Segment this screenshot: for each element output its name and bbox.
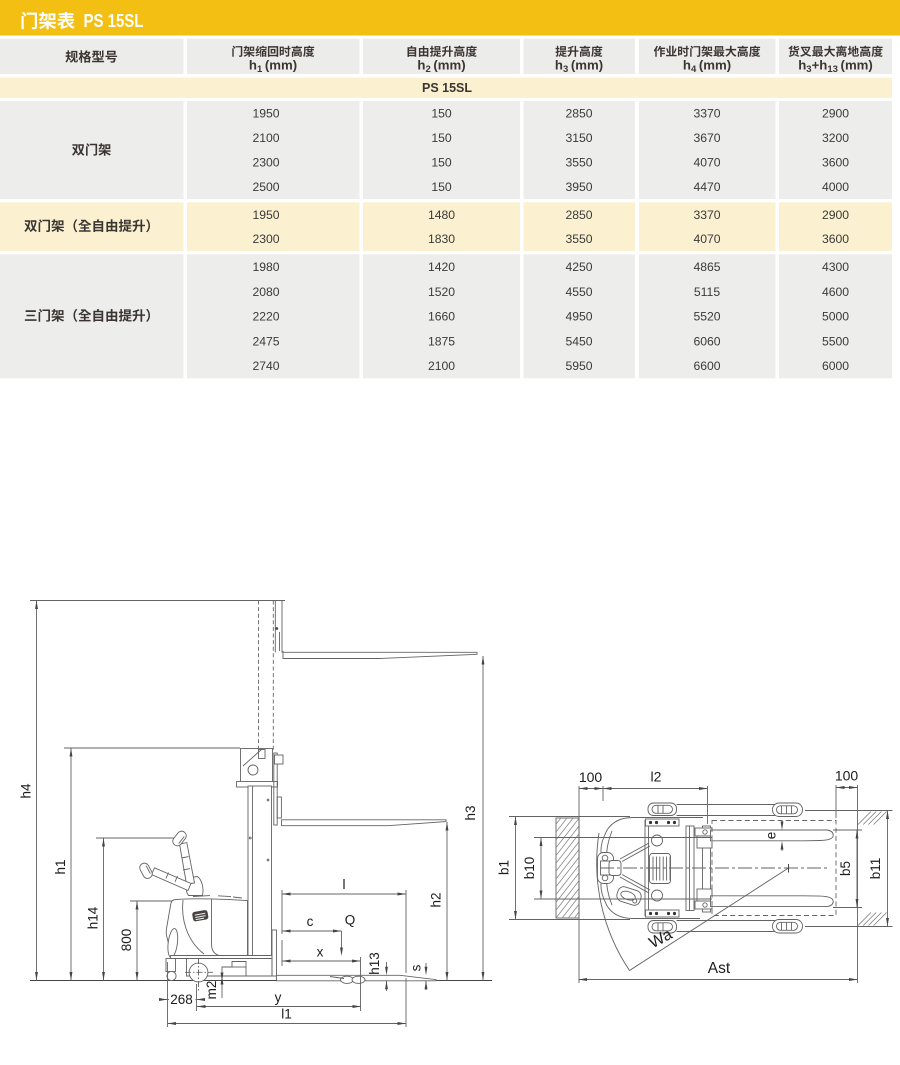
svg-text:4070: 4070 (693, 232, 720, 246)
svg-text:5950: 5950 (565, 359, 592, 373)
svg-text:1875: 1875 (428, 334, 455, 348)
svg-text:b11: b11 (868, 858, 883, 880)
svg-text:4470: 4470 (693, 180, 720, 194)
svg-text:3950: 3950 (565, 180, 592, 194)
svg-text:3370: 3370 (693, 208, 720, 222)
svg-text:4600: 4600 (822, 285, 849, 299)
svg-text:1950: 1950 (252, 107, 279, 121)
svg-text:l: l (343, 877, 346, 892)
svg-text:h1: h1 (53, 859, 68, 874)
svg-text:800: 800 (119, 929, 134, 952)
svg-text:h14: h14 (86, 906, 101, 929)
svg-text:150: 150 (431, 107, 452, 121)
svg-text:1830: 1830 (428, 232, 455, 246)
svg-text:3200: 3200 (822, 131, 849, 145)
svg-text:2900: 2900 (822, 107, 849, 121)
svg-text:m2: m2 (204, 981, 219, 1000)
svg-text:x: x (317, 945, 324, 960)
svg-text:6060: 6060 (693, 334, 720, 348)
svg-text:4000: 4000 (822, 180, 849, 194)
svg-text:2100: 2100 (252, 131, 279, 145)
svg-text:6000: 6000 (822, 359, 849, 373)
svg-text:3600: 3600 (822, 156, 849, 170)
svg-text:150: 150 (431, 180, 452, 194)
svg-text:2900: 2900 (822, 208, 849, 222)
svg-text:3150: 3150 (565, 131, 592, 145)
svg-text:268: 268 (170, 992, 193, 1007)
svg-text:2300: 2300 (252, 156, 279, 170)
svg-text:h1 (mm): h1 (mm) (249, 58, 297, 75)
svg-text:6600: 6600 (693, 359, 720, 373)
svg-text:s: s (409, 964, 424, 971)
svg-text:Q: Q (345, 913, 356, 928)
svg-text:4300: 4300 (822, 260, 849, 274)
svg-text:3670: 3670 (693, 131, 720, 145)
svg-text:y: y (275, 990, 282, 1005)
svg-text:2080: 2080 (252, 285, 279, 299)
svg-text:5520: 5520 (693, 310, 720, 324)
svg-text:h4: h4 (19, 783, 34, 799)
svg-text:1420: 1420 (428, 260, 455, 274)
svg-text:5500: 5500 (822, 334, 849, 348)
svg-text:1950: 1950 (252, 208, 279, 222)
svg-text:5115: 5115 (694, 285, 720, 299)
svg-text:h3: h3 (463, 805, 478, 820)
svg-text:3550: 3550 (565, 232, 592, 246)
svg-text:1520: 1520 (428, 285, 455, 299)
svg-text:2300: 2300 (252, 232, 279, 246)
svg-text:4865: 4865 (693, 260, 720, 274)
svg-text:b1: b1 (497, 860, 512, 875)
svg-text:h2 (mm): h2 (mm) (417, 58, 465, 75)
svg-text:h4 (mm): h4 (mm) (683, 58, 731, 75)
svg-text:PS 15SL: PS 15SL (422, 81, 472, 95)
svg-text:h13: h13 (367, 952, 382, 975)
svg-text:2850: 2850 (565, 107, 592, 121)
svg-text:4950: 4950 (565, 310, 592, 324)
svg-text:3600: 3600 (822, 232, 849, 246)
svg-text:2740: 2740 (252, 359, 279, 373)
svg-text:Ast: Ast (708, 960, 731, 977)
svg-text:2850: 2850 (565, 208, 592, 222)
svg-text:5000: 5000 (822, 310, 849, 324)
svg-text:l2: l2 (651, 769, 662, 785)
svg-text:b5: b5 (838, 861, 853, 876)
svg-text:c: c (307, 914, 314, 929)
svg-text:4550: 4550 (565, 285, 592, 299)
svg-text:1660: 1660 (428, 310, 455, 324)
svg-text:2500: 2500 (252, 180, 279, 194)
svg-text:4070: 4070 (693, 156, 720, 170)
svg-text:3550: 3550 (565, 156, 592, 170)
svg-text:100: 100 (579, 769, 603, 785)
svg-text:4250: 4250 (565, 260, 592, 274)
svg-text:e: e (764, 832, 779, 840)
svg-text:2220: 2220 (252, 310, 279, 324)
svg-text:100: 100 (835, 768, 859, 784)
svg-text:l1: l1 (281, 1007, 292, 1022)
svg-text:150: 150 (431, 156, 452, 170)
svg-text:1980: 1980 (252, 260, 279, 274)
svg-text:h3 (mm): h3 (mm) (555, 58, 603, 75)
svg-text:h2: h2 (429, 892, 444, 907)
svg-text:2475: 2475 (252, 334, 279, 348)
svg-text:b10: b10 (522, 857, 537, 880)
svg-text:150: 150 (431, 131, 452, 145)
svg-text:PS 15SL: PS 15SL (84, 10, 144, 31)
svg-text:1480: 1480 (428, 208, 455, 222)
svg-text:3370: 3370 (693, 107, 720, 121)
svg-text:5450: 5450 (565, 334, 592, 348)
svg-text:2100: 2100 (428, 359, 455, 373)
